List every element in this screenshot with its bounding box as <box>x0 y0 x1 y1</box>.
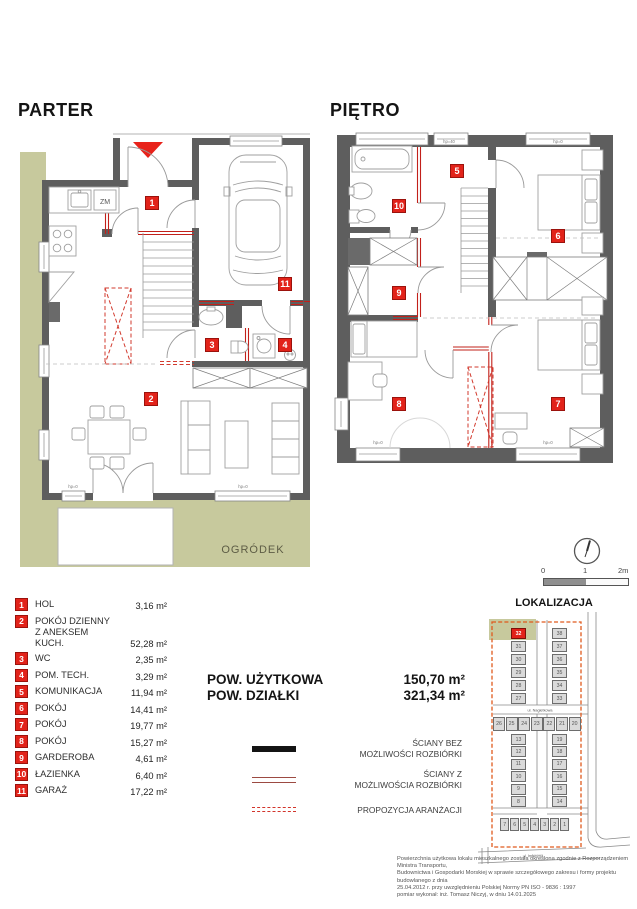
wardrobes <box>193 368 307 388</box>
entrance-arrow <box>133 142 163 158</box>
footnote-line: Budownictwa i Gospodarki Morskiej w spra… <box>397 870 635 884</box>
lot-22: 22 <box>543 717 555 731</box>
legend-room-number: 11 <box>15 784 28 797</box>
legend-row: 9GARDEROBA4,61 m² <box>15 751 167 764</box>
legend-room-name: POKÓJ <box>35 735 115 747</box>
lot-15: 15 <box>552 784 567 795</box>
legend-room-area: 6,40 m² <box>115 771 167 781</box>
red-walls <box>106 190 311 361</box>
pietro-drawing: hp=40 hp=0 hp=0 hp=0 <box>333 130 633 475</box>
legend-room-area: 11,94 m² <box>115 688 167 698</box>
street-label-nagietkowa: ul. Nagietkowa <box>528 709 554 713</box>
footnote-line: Powierzchnia użytkowa lokalu mieszkalneg… <box>397 856 635 870</box>
lot-2: 2 <box>550 818 559 831</box>
legend-row: 11GARAŻ17,22 m² <box>15 784 167 797</box>
legend-row: 8POKÓJ15,27 m² <box>15 735 167 748</box>
living-furniture <box>72 401 299 474</box>
legend-room-number: 3 <box>15 652 28 665</box>
legend-row: 4POM. TECH.3,29 m² <box>15 669 167 682</box>
room-badge-8: 8 <box>392 397 406 411</box>
wall-symbol-dashed-red <box>250 800 300 820</box>
legend-room-name: GARDEROBA <box>35 751 115 763</box>
legend-room-number: 7 <box>15 718 28 731</box>
lot-35: 35 <box>552 667 567 678</box>
lot-31: 31 <box>511 641 526 652</box>
summary-row: POW. UŻYTKOWA150,70 m² <box>207 672 465 688</box>
lot-21: 21 <box>556 717 568 731</box>
lot-26: 26 <box>493 717 505 731</box>
lot-12: 12 <box>511 746 526 757</box>
lot-17: 17 <box>552 759 567 770</box>
lot-38: 38 <box>552 628 567 639</box>
lot-23: 23 <box>531 717 543 731</box>
lot-3: 3 <box>540 818 549 831</box>
north-compass-icon <box>568 536 606 566</box>
legend-room-area: 19,77 m² <box>115 721 167 731</box>
lot-9: 9 <box>511 784 526 795</box>
lot-33: 33 <box>552 693 567 704</box>
parter-title: PARTER <box>18 100 94 121</box>
legend-room-number: 9 <box>15 751 28 764</box>
legend-row: 7POKÓJ19,77 m² <box>15 718 167 731</box>
legend-room-number: 4 <box>15 669 28 682</box>
legend-row: 3WC2,35 m² <box>15 652 167 665</box>
legend-row: 1HOL3,16 m² <box>15 598 167 611</box>
scale-block: 0 1 2m <box>540 536 635 594</box>
wall-legend-label: ŚCIANY BEZMOŻLIWOŚCI ROZBIÓRKI <box>300 738 462 759</box>
room-badge-5: 5 <box>450 164 464 178</box>
room-badge-9: 9 <box>392 286 406 300</box>
window-label: hp=0 <box>373 440 383 445</box>
room-badge-3: 3 <box>205 338 219 352</box>
lot-13: 13 <box>511 734 526 745</box>
lot-27: 27 <box>511 693 526 704</box>
lokalizacja-map: ul. Nagietkowa ul. Imbirowa 323130292827… <box>478 612 630 872</box>
lot-4: 4 <box>530 818 539 831</box>
dishwasher-label: ZM <box>100 199 110 206</box>
wall-legend-row: ŚCIANY ZMOŻLIWOŚCIA ROZBIÓRKI <box>250 769 462 790</box>
legend-row: 5KOMUNIKACJA11,94 m² <box>15 685 167 698</box>
legend-room-name: GARAŻ <box>35 784 115 796</box>
scale-labels: 0 1 2m <box>540 566 630 576</box>
legend-room-name: POKÓJ <box>35 702 115 714</box>
legend-room-name: HOL <box>35 598 115 610</box>
lot-5: 5 <box>520 818 529 831</box>
scale-0: 0 <box>541 566 545 575</box>
scale-2m: 2m <box>618 566 628 575</box>
site-boundary <box>492 622 581 847</box>
window-label: hp=0 <box>553 139 563 144</box>
lot-37: 37 <box>552 641 567 652</box>
legend-room-area: 2,35 m² <box>115 655 167 665</box>
lot-1: 1 <box>560 818 569 831</box>
lot-19: 19 <box>552 734 567 745</box>
legend-row: 2POKÓJ DZIENNYZ ANEKSEM KUCH.52,28 m² <box>15 615 167 649</box>
garden-area: OGRÓDEK <box>20 152 310 567</box>
lot-20: 20 <box>569 717 581 731</box>
lot-34: 34 <box>552 680 567 691</box>
room-legend: 1HOL3,16 m²2POKÓJ DZIENNYZ ANEKSEM KUCH.… <box>15 598 167 797</box>
scale-1: 1 <box>583 566 587 575</box>
lot-25: 25 <box>506 717 518 731</box>
lot-18: 18 <box>552 746 567 757</box>
measurement-footnote: Powierzchnia użytkowa lokalu mieszkalneg… <box>397 856 635 899</box>
lot-36: 36 <box>552 654 567 665</box>
room-badge-6: 6 <box>551 229 565 243</box>
legend-room-area: 4,61 m² <box>115 754 167 764</box>
wall-legend-row: PROPOZYCJA ARANŻACJI <box>250 800 462 820</box>
lot-11: 11 <box>511 759 526 770</box>
wall-legend-label: PROPOZYCJA ARANŻACJI <box>300 805 462 816</box>
legend-room-number: 10 <box>15 768 28 781</box>
lokalizacja-title: LOKALIZACJA <box>478 597 630 609</box>
legend-room-name: POM. TECH. <box>35 669 115 681</box>
lot-14: 14 <box>552 796 567 807</box>
lot-7: 7 <box>500 818 509 831</box>
room-badge-1: 1 <box>145 196 159 210</box>
lot-24: 24 <box>518 717 530 731</box>
wall-symbol-solid-black <box>250 739 300 759</box>
stairs <box>143 233 194 338</box>
wall-symbol-double-red <box>250 770 300 790</box>
window-label: hp=0 <box>543 440 553 445</box>
lot-32: 32 <box>511 628 526 639</box>
lot-29: 29 <box>511 667 526 678</box>
lot-30: 30 <box>511 654 526 665</box>
summary-row: POW. DZIAŁKI321,34 m² <box>207 688 465 704</box>
lot-6: 6 <box>510 818 519 831</box>
legend-room-name: KOMUNIKACJA <box>35 685 115 697</box>
legend-row: 6POKÓJ14,41 m² <box>15 702 167 715</box>
legend-room-number: 5 <box>15 685 28 698</box>
pietro-floorplan: hp=40 hp=0 hp=0 hp=0 5678910 <box>333 130 633 475</box>
lot-28: 28 <box>511 680 526 691</box>
legend-room-area: 52,28 m² <box>115 639 167 649</box>
footnote-line: pomiar wykonał: inż. Tomasz Niczyj, w dn… <box>397 892 635 899</box>
parter-drawing: OGRÓDEK <box>10 130 320 570</box>
summary-value: 150,70 m² <box>403 672 465 688</box>
summary-label: POW. UŻYTKOWA <box>207 672 323 688</box>
lot-8: 8 <box>511 796 526 807</box>
window-label: hp=0 <box>238 484 248 489</box>
parter-floorplan: OGRÓDEK <box>10 130 320 570</box>
summary-value: 321,34 m² <box>403 688 465 704</box>
room-badge-4: 4 <box>278 338 292 352</box>
stairs <box>461 188 488 293</box>
arrangement-proposal <box>46 288 194 365</box>
legend-row: 10ŁAZIENKA6,40 m² <box>15 768 167 781</box>
legend-room-area: 14,41 m² <box>115 705 167 715</box>
legend-room-number: 8 <box>15 735 28 748</box>
room-badge-10: 10 <box>392 199 406 213</box>
window-label: hp=0 <box>68 484 78 489</box>
room-badge-7: 7 <box>551 397 565 411</box>
lot-16: 16 <box>552 771 567 782</box>
legend-room-name: POKÓJ <box>35 718 115 730</box>
window-label: hp=40 <box>443 139 455 144</box>
scale-bar <box>543 578 629 586</box>
legend-room-area: 17,22 m² <box>115 787 167 797</box>
room-badge-11: 11 <box>278 277 292 291</box>
legend-room-name: POKÓJ DZIENNYZ ANEKSEM KUCH. <box>35 615 115 649</box>
legend-room-area: 3,29 m² <box>115 672 167 682</box>
car <box>224 155 292 285</box>
room-badge-2: 2 <box>144 392 158 406</box>
legend-room-name: ŁAZIENKA <box>35 768 115 780</box>
wall-legend-row: ŚCIANY BEZMOŻLIWOŚCI ROZBIÓRKI <box>250 738 462 759</box>
summary-label: POW. DZIAŁKI <box>207 688 299 704</box>
legend-room-name: WC <box>35 652 115 664</box>
legend-room-number: 1 <box>15 598 28 611</box>
legend-room-area: 15,27 m² <box>115 738 167 748</box>
footnote-line: 25.04.2012 r. przy uwzględnieniu Polskie… <box>397 885 635 892</box>
legend-room-area: 3,16 m² <box>115 601 167 611</box>
wc-fixtures <box>199 307 296 361</box>
kitchen-fixtures: ZM <box>49 187 119 302</box>
floorplan-sheet: PARTER PIĘTRO OGRÓDEK <box>0 0 637 909</box>
area-summary: POW. UŻYTKOWA150,70 m²POW. DZIAŁKI321,34… <box>207 672 465 704</box>
garden-label: OGRÓDEK <box>221 543 284 556</box>
wall-legend-label: ŚCIANY ZMOŻLIWOŚCIA ROZBIÓRKI <box>300 769 462 790</box>
legend-room-number: 2 <box>15 615 28 628</box>
lot-10: 10 <box>511 771 526 782</box>
pietro-title: PIĘTRO <box>330 100 400 121</box>
wall-type-legend: ŚCIANY BEZMOŻLIWOŚCI ROZBIÓRKIŚCIANY ZMO… <box>250 738 462 830</box>
legend-room-number: 6 <box>15 702 28 715</box>
